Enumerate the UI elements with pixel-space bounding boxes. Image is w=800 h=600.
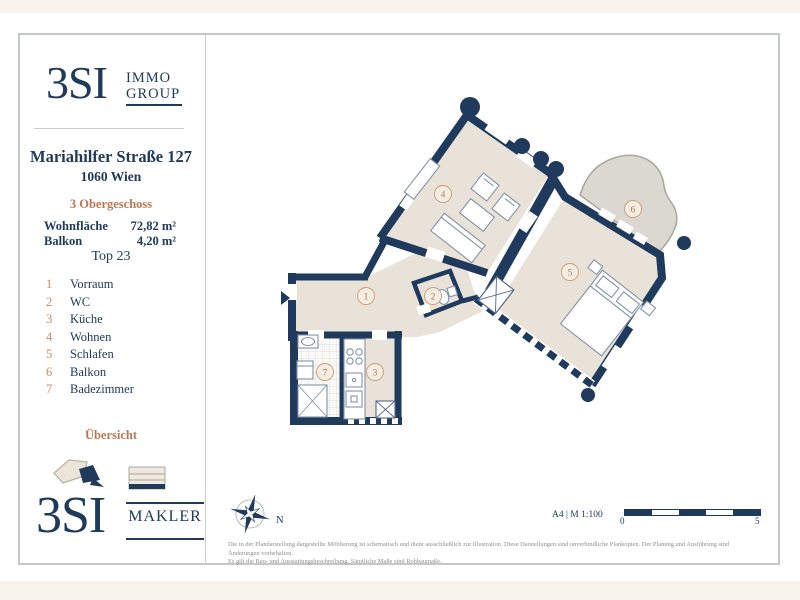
room-name: Badezimmer bbox=[70, 381, 134, 399]
floorplan-document: 3SI IMMO GROUP Mariahilfer Straße 127 10… bbox=[0, 0, 800, 600]
svg-text:3: 3 bbox=[373, 369, 378, 379]
pilaster-bump bbox=[581, 388, 595, 402]
scale-end-label: 5 bbox=[755, 516, 760, 526]
compass-icon: N bbox=[228, 492, 292, 538]
plan-room-number-2: 2 bbox=[425, 288, 442, 305]
plan-room-number-1: 1 bbox=[358, 288, 375, 305]
room-legend-row: 2WC bbox=[46, 294, 134, 312]
disclaimer-text: Die in der Plandarstellung dargestellte … bbox=[228, 541, 748, 567]
room-name: Balkon bbox=[70, 364, 106, 382]
svg-text:1: 1 bbox=[364, 293, 369, 303]
svg-text:7: 7 bbox=[323, 369, 328, 379]
unit-label: Top 23 bbox=[22, 249, 200, 265]
pilaster-bump bbox=[677, 236, 691, 250]
brand-tagline-line1: IMMO bbox=[126, 71, 180, 87]
overview-label: Übersicht bbox=[22, 428, 200, 443]
kitchen-fixtures bbox=[344, 339, 365, 419]
scale-format-label: A4 | M 1:100 bbox=[552, 510, 603, 520]
scale-segment bbox=[625, 510, 652, 515]
scale-segment bbox=[733, 510, 760, 515]
plan-room-number-3: 3 bbox=[367, 364, 384, 381]
floor-label: 3 Obergeschoss bbox=[22, 197, 200, 212]
pilaster-bump bbox=[533, 151, 549, 167]
area-value: 72,82 m² bbox=[131, 219, 176, 234]
pilaster-bump bbox=[514, 138, 530, 154]
area-label: Balkon bbox=[44, 234, 82, 249]
plan-room-number-7: 7 bbox=[317, 364, 334, 381]
scale-start-label: 0 bbox=[620, 516, 625, 526]
brand-top-underline bbox=[126, 104, 182, 106]
room-number: 1 bbox=[46, 276, 70, 294]
room-name: Schlafen bbox=[70, 346, 114, 364]
room-name: Wohnen bbox=[70, 329, 111, 347]
disclaimer-line2: Es gilt die Bau- und Ausstattungsbeschre… bbox=[228, 558, 748, 567]
brand-logo-top: 3SI bbox=[46, 56, 107, 109]
svg-text:5: 5 bbox=[568, 269, 573, 279]
room-number: 6 bbox=[46, 364, 70, 382]
room-name: Küche bbox=[70, 311, 103, 329]
room-legend-row: 4Wohnen bbox=[46, 329, 134, 347]
top-cream-strip bbox=[0, 0, 800, 13]
area-label: Wohnfläche bbox=[44, 219, 108, 234]
plan-room-number-6: 6 bbox=[625, 201, 642, 218]
disclaimer-line1: Die in der Plandarstellung dargestellte … bbox=[228, 541, 748, 558]
plan-room-number-5: 5 bbox=[562, 264, 579, 281]
sidebar-divider bbox=[205, 35, 206, 562]
brand-tagline-line2: GROUP bbox=[126, 87, 180, 103]
room-legend-row: 7Badezimmer bbox=[46, 381, 134, 399]
room-legend-row: 5Schlafen bbox=[46, 346, 134, 364]
room-legend: 1Vorraum 2WC 3Küche 4Wohnen 5Schlafen 6B… bbox=[46, 276, 134, 399]
makler-overline bbox=[126, 502, 204, 504]
kitchen-shaft bbox=[376, 401, 395, 418]
brand-logo-bottom: 3SI bbox=[36, 486, 105, 545]
svg-text:6: 6 bbox=[631, 206, 636, 216]
svg-text:4: 4 bbox=[441, 191, 446, 201]
room-number: 4 bbox=[46, 329, 70, 347]
scale-segment bbox=[706, 510, 733, 515]
room-name: Vorraum bbox=[70, 276, 114, 294]
room-name: WC bbox=[70, 294, 90, 312]
svg-text:N: N bbox=[276, 515, 284, 526]
address-city: 1060 Wien bbox=[22, 169, 200, 185]
scale-segment bbox=[652, 510, 679, 515]
pilaster-bump bbox=[548, 161, 564, 177]
room-number: 2 bbox=[46, 294, 70, 312]
room-number: 5 bbox=[46, 346, 70, 364]
makler-underline bbox=[126, 538, 204, 540]
brand-logo-top-tagline: IMMO GROUP bbox=[126, 71, 180, 102]
area-row-wohnflaeche: Wohnfläche 72,82 m² bbox=[44, 219, 176, 234]
bottom-cream-strip bbox=[0, 581, 800, 600]
brand-logo-bottom-tagline: MAKLER bbox=[126, 508, 204, 526]
pilaster-bump bbox=[460, 97, 480, 117]
room-legend-row: 3Küche bbox=[46, 311, 134, 329]
area-table: Wohnfläche 72,82 m² Balkon 4,20 m² bbox=[44, 219, 176, 249]
area-value: 4,20 m² bbox=[137, 234, 176, 249]
room-legend-row: 6Balkon bbox=[46, 364, 134, 382]
floor-level-icon bbox=[126, 464, 168, 492]
scale-segment bbox=[679, 510, 706, 515]
sidebar-horizontal-rule bbox=[34, 128, 184, 129]
room-legend-row: 1Vorraum bbox=[46, 276, 134, 294]
scale-bar bbox=[624, 509, 761, 516]
floorplan-drawing: 1 2 3 4 5 6 7 bbox=[280, 85, 700, 435]
room-number: 3 bbox=[46, 311, 70, 329]
svg-text:2: 2 bbox=[431, 293, 436, 303]
area-row-balkon: Balkon 4,20 m² bbox=[44, 234, 176, 249]
room-number: 7 bbox=[46, 381, 70, 399]
plan-room-number-4: 4 bbox=[435, 186, 452, 203]
address-street: Mariahilfer Straße 127 bbox=[22, 147, 200, 167]
